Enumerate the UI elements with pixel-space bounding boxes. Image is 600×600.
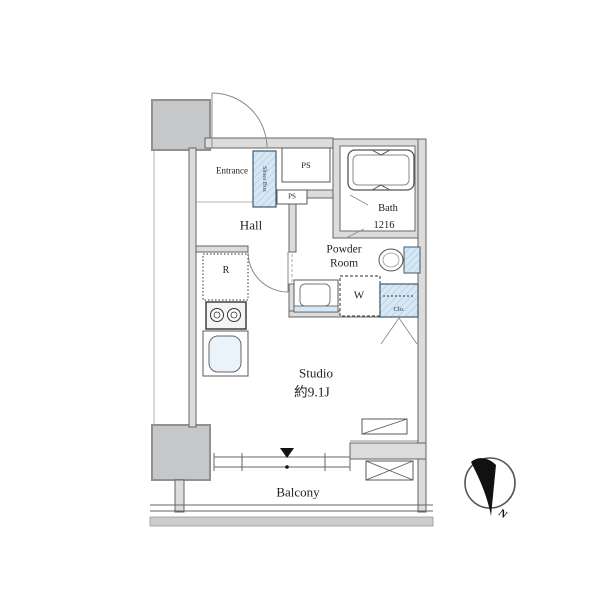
compass-icon [465,458,515,516]
kitchen-sink-icon [203,331,248,376]
label-ps-lower: PS [288,194,296,201]
label-studio: Studio [299,367,333,380]
floorplan-drawing [0,0,600,600]
stove-icon [206,302,246,329]
label-closet: Clo. [393,307,404,314]
pillar-bottom-left [152,425,210,480]
label-bath-size: 1216 [374,221,395,232]
ac-outdoor-unit-icon [366,461,413,480]
vent-box-icon [362,419,407,434]
label-studio-area: 約9.1J [294,385,330,399]
balcony-railing [150,505,433,526]
wall-powder-west [289,198,296,252]
wall-top [205,138,333,148]
studio-door-icon [248,252,288,292]
refrigerator-space-box [203,254,248,300]
floorplan-page: Entrance Shoes Box PS PS Bath 1216 Hall … [0,0,600,600]
toilet-icon [379,247,420,273]
label-ps-upper: PS [301,161,310,170]
wall-hall-studio [196,246,248,252]
label-washer: W [354,291,364,302]
label-hall: Hall [240,219,262,232]
pillar-top-left [152,100,210,150]
label-bath: Bath [378,204,398,215]
closet-door-icon [381,318,417,344]
balcony-divider [175,480,184,512]
label-entrance: Entrance [216,167,248,176]
vanity-sink-icon [294,280,338,312]
wall-left [189,148,196,427]
label-refrigerator: R [223,266,230,276]
label-shoes-box: Shoes Box [261,166,267,192]
wall-bottom-right [350,443,426,459]
label-powder-room-line2: Room [330,258,358,270]
label-balcony: Balcony [276,486,319,499]
label-powder-room-line1: Powder [326,244,361,256]
balcony-window-icon [214,448,350,471]
